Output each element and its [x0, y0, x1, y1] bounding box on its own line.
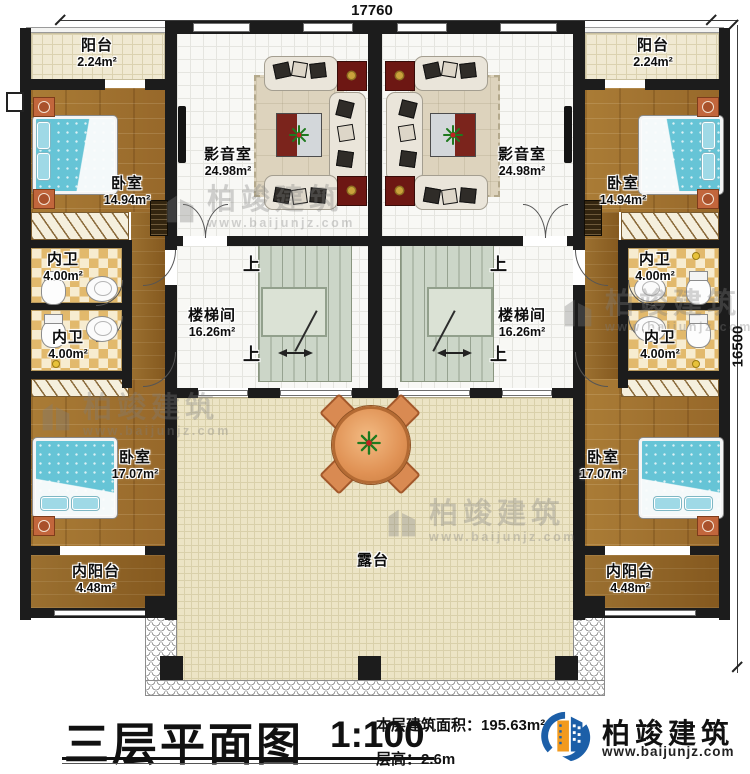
- nightstand: [33, 97, 55, 117]
- wardrobe-top-left: [31, 212, 129, 240]
- pillow: [37, 122, 50, 149]
- room-label-bedroom-top-left: 卧室14.94m²: [87, 176, 167, 207]
- room-label-bedroom-bottom-right: 卧室17.07m²: [563, 450, 643, 481]
- wall-lamp: [692, 360, 700, 368]
- stair-arrow: [463, 349, 472, 357]
- stair-arrow: [278, 349, 287, 357]
- room-label-theater-right: 影音室24.98m²: [482, 147, 562, 178]
- terrace-door: [198, 390, 248, 396]
- room-label-inner-balcony-left: 内阳台4.48m²: [56, 564, 136, 595]
- wall: [690, 546, 730, 555]
- room-label-terrace: 露台: [333, 553, 413, 570]
- window: [602, 610, 696, 616]
- room-label-bath-right-top: 内卫4.00m²: [615, 252, 695, 283]
- pillow: [702, 153, 715, 180]
- sofa: [264, 175, 338, 210]
- window: [500, 23, 557, 32]
- terrace-door: [398, 390, 470, 396]
- nightstand: [697, 97, 719, 117]
- floor-plan-page: 17760 16500: [0, 0, 750, 774]
- stair-up-label: 上: [243, 340, 260, 365]
- wall: [122, 240, 132, 388]
- wall-lamp: [52, 360, 60, 368]
- wall: [382, 236, 523, 246]
- window: [303, 23, 353, 32]
- wardrobe-bottom-left: [31, 379, 129, 397]
- room-label-bedroom-top-right: 卧室14.94m²: [583, 176, 663, 207]
- sofa: [264, 56, 338, 91]
- pillow: [654, 497, 681, 510]
- wall: [20, 79, 105, 90]
- floor-area-text: 本层建筑面积：195.63m²: [376, 714, 545, 735]
- projection-screen: [564, 106, 572, 163]
- room-label-bath-left-bottom: 内卫4.00m²: [28, 330, 108, 361]
- wall: [248, 388, 280, 398]
- door-arc: [575, 250, 608, 286]
- room-label-balcony-right: 阳台2.24m²: [613, 38, 693, 69]
- dining-table: [332, 406, 410, 484]
- pillar: [160, 656, 183, 680]
- window: [397, 23, 447, 32]
- plant-icon: [356, 430, 382, 456]
- wall-center-spine: [368, 21, 382, 392]
- wall: [170, 388, 198, 398]
- pillow: [37, 153, 50, 180]
- wall: [618, 303, 730, 310]
- wall: [20, 240, 132, 248]
- coffee-table: [430, 113, 476, 157]
- stair-up-label: 上: [243, 250, 260, 275]
- stair-arrow: [304, 349, 313, 357]
- wall: [145, 79, 165, 90]
- sofa: [414, 56, 488, 91]
- wall: [470, 388, 502, 398]
- balcony-rail-left: [26, 27, 168, 33]
- speaker-mat: [337, 176, 367, 206]
- projection-screen: [178, 106, 186, 163]
- wardrobe-top-right: [621, 212, 719, 240]
- coffee-table: [276, 113, 322, 157]
- wall-corner-post: [575, 596, 605, 618]
- floor-height-text: 层高：2.6m: [376, 748, 455, 769]
- window: [193, 23, 250, 32]
- exterior-fixture: [6, 92, 24, 112]
- wall: [645, 79, 730, 90]
- terrace-eave-bottom: [145, 680, 605, 696]
- stair-up-label: 上: [490, 340, 507, 365]
- room-label-bath-right-bottom: 内卫4.00m²: [620, 330, 700, 361]
- room-label-balcony-left: 阳台2.24m²: [57, 38, 137, 69]
- door-arc: [143, 250, 176, 286]
- wall: [618, 371, 730, 379]
- wardrobe-bottom-right: [621, 379, 719, 397]
- wall-exterior-left: [20, 28, 31, 620]
- wall: [20, 371, 132, 379]
- nightstand: [697, 189, 719, 209]
- speaker-mat: [385, 61, 415, 91]
- plant-icon: [442, 124, 464, 146]
- wall: [20, 546, 60, 555]
- dimension-height: 16500: [730, 297, 747, 397]
- wall-corner-post: [145, 596, 175, 618]
- balcony-rail-right: [582, 27, 724, 33]
- pillar: [358, 656, 381, 680]
- sofa: [329, 92, 366, 182]
- nightstand: [697, 516, 719, 536]
- stair-arrow-line: [446, 352, 463, 354]
- wall: [145, 546, 175, 555]
- room-label-stairhall-left: 楼梯间16.26m²: [172, 308, 252, 339]
- plant-icon: [288, 124, 310, 146]
- nightstand: [33, 516, 55, 536]
- dimension-width: 17760: [322, 2, 422, 19]
- wall: [352, 388, 398, 398]
- wall: [585, 79, 605, 90]
- pillar: [555, 656, 578, 680]
- wall: [575, 546, 605, 555]
- pillow: [685, 497, 712, 510]
- room-label-theater-left: 影音室24.98m²: [188, 147, 268, 178]
- company-url: www.baijunjz.com: [602, 744, 735, 759]
- stair-arrow-line: [287, 352, 304, 354]
- speaker-mat: [385, 176, 415, 206]
- window: [54, 610, 148, 616]
- pillow: [41, 497, 68, 510]
- sofa: [414, 175, 488, 210]
- company-logo-icon: [538, 706, 596, 766]
- room-label-bedroom-bottom-left: 卧室17.07m²: [95, 450, 175, 481]
- wall: [618, 240, 730, 248]
- stair-arrow: [437, 349, 446, 357]
- sofa: [386, 92, 423, 182]
- room-label-inner-balcony-right: 内阳台4.48m²: [590, 564, 670, 595]
- room-label-stairhall-right: 楼梯间16.26m²: [482, 308, 562, 339]
- pillow: [702, 122, 715, 149]
- nightstand: [33, 189, 55, 209]
- speaker-mat: [337, 61, 367, 91]
- wall: [552, 388, 580, 398]
- wall: [227, 236, 368, 246]
- terrace-door: [502, 390, 552, 396]
- room-label-bath-left-top: 内卫4.00m²: [23, 252, 103, 283]
- wall: [20, 303, 132, 310]
- pillow: [72, 497, 99, 510]
- stair-up-label: 上: [490, 250, 507, 275]
